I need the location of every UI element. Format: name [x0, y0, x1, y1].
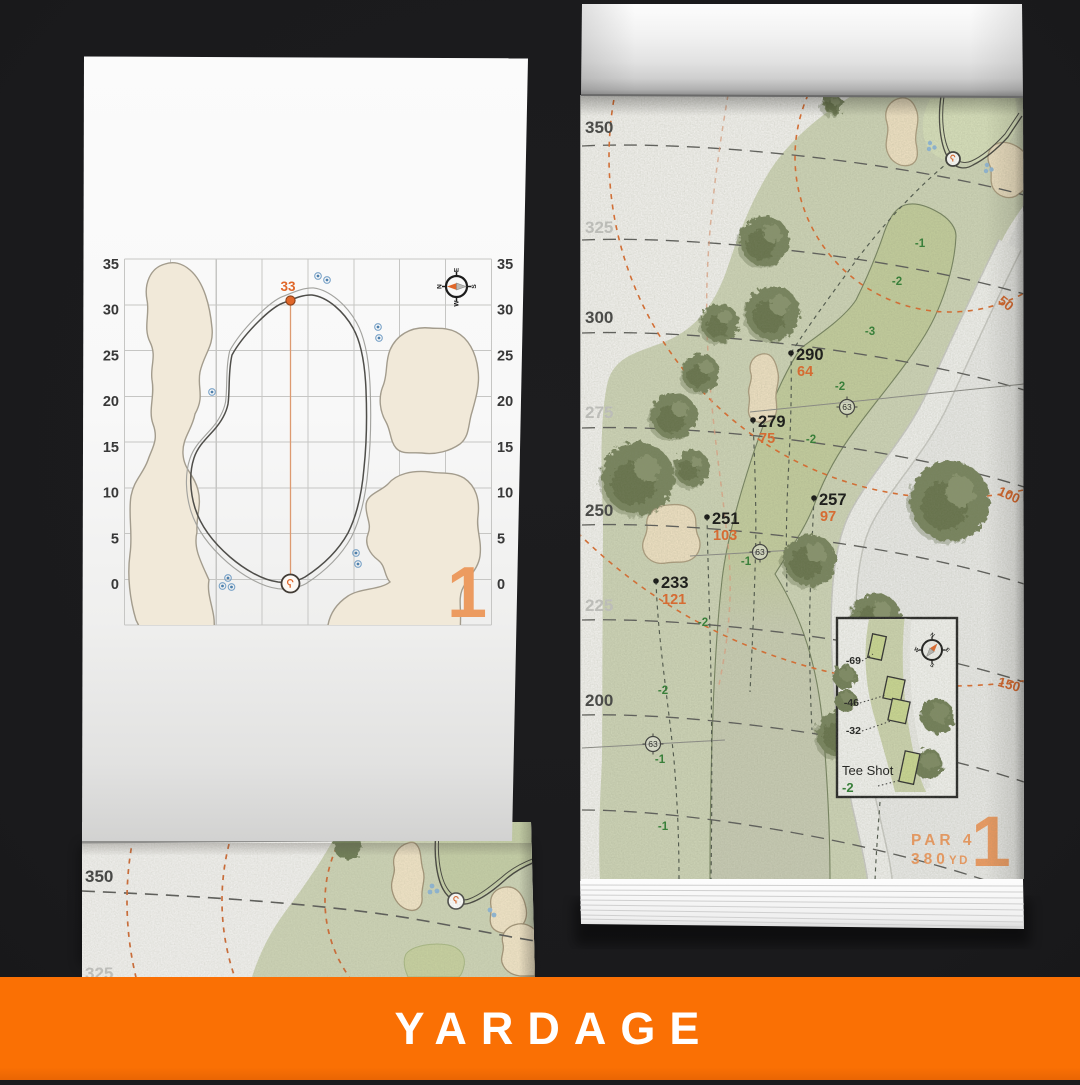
svg-text:0: 0 [111, 577, 119, 593]
svg-text:25: 25 [497, 348, 513, 364]
svg-text:33: 33 [280, 279, 296, 294]
svg-text:YARDAGE: YARDAGE [395, 1003, 714, 1054]
svg-text:5: 5 [111, 531, 119, 547]
svg-text:25: 25 [103, 348, 119, 364]
svg-text:30: 30 [497, 303, 513, 319]
svg-text:20: 20 [497, 394, 513, 410]
svg-text:S: S [471, 284, 478, 289]
svg-text:35: 35 [497, 257, 513, 273]
svg-text:E: E [454, 267, 461, 272]
svg-text:5: 5 [497, 531, 505, 547]
svg-text:N: N [437, 284, 444, 289]
svg-text:10: 10 [497, 486, 513, 502]
svg-text:W: W [454, 300, 461, 307]
svg-text:35: 35 [103, 257, 119, 273]
svg-text:15: 15 [497, 440, 513, 456]
svg-text:15: 15 [103, 440, 119, 456]
svg-text:30: 30 [103, 303, 119, 319]
svg-text:10: 10 [103, 486, 119, 502]
svg-text:0: 0 [497, 577, 505, 593]
svg-text:20: 20 [103, 394, 119, 410]
svg-text:1: 1 [447, 553, 487, 633]
